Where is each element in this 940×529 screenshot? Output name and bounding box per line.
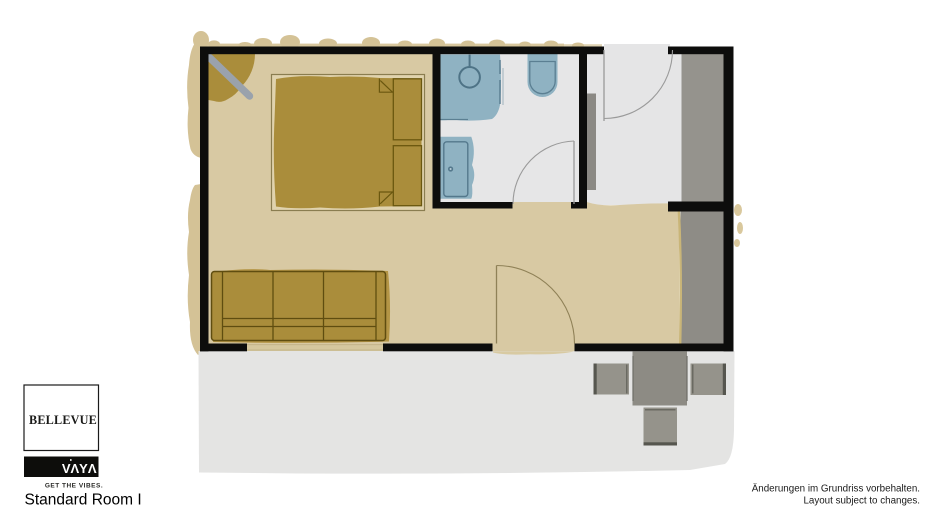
- svg-text:Änderungen im Grundriss vorbeh: Änderungen im Grundriss vorbehalten.: [752, 484, 920, 495]
- svg-text:BELLEVUE: BELLEVUE: [29, 413, 97, 427]
- svg-text:Standard Room I: Standard Room I: [25, 492, 142, 509]
- svg-text:Layout subject to changes.: Layout subject to changes.: [803, 496, 920, 507]
- svg-text:GET THE VIBES.: GET THE VIBES.: [45, 483, 103, 490]
- svg-text:VΛYΛ: VΛYΛ: [62, 461, 97, 476]
